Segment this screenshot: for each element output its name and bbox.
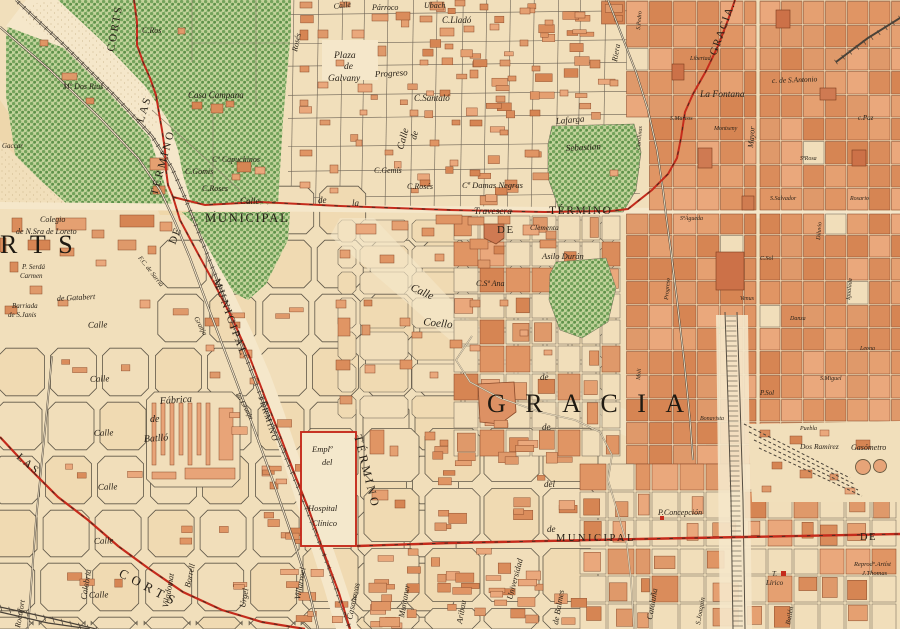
svg-text:Carmen: Carmen — [20, 272, 43, 280]
svg-text:de: de — [547, 524, 556, 534]
svg-text:de: de — [318, 195, 327, 205]
svg-text:C.Sº Ana: C.Sº Ana — [476, 279, 505, 288]
svg-text:Puebla: Puebla — [799, 426, 817, 432]
svg-text:Mº Dos Rius: Mº Dos Rius — [62, 82, 103, 91]
svg-text:S.Miguel: S.Miguel — [820, 376, 842, 382]
svg-text:MUNICIPAL: MUNICIPAL — [556, 533, 636, 544]
svg-text:C.Gomis: C.Gomis — [185, 167, 213, 176]
svg-text:Párroco: Párroco — [371, 3, 398, 12]
svg-text:Gasómetro: Gasómetro — [851, 443, 886, 452]
svg-text:Travesera: Travesera — [474, 207, 512, 217]
svg-text:del: del — [322, 457, 333, 467]
svg-text:J.Thomas: J.Thomas — [862, 570, 888, 577]
svg-text:Calle: Calle — [88, 319, 108, 330]
svg-text:Gaccar: Gaccar — [2, 142, 23, 150]
svg-text:Fábrica: Fábrica — [158, 394, 192, 407]
svg-text:C.Sol: C.Sol — [760, 256, 774, 262]
svg-text:c.Paz: c.Paz — [858, 114, 874, 122]
svg-text:Bonavista: Bonavista — [700, 416, 724, 422]
svg-text:Clementa: Clementa — [530, 223, 559, 232]
svg-text:C.Santaló: C.Santaló — [414, 93, 450, 103]
svg-text:del: del — [544, 479, 555, 489]
svg-text:DE: DE — [860, 532, 877, 543]
svg-text:Barriada: Barriada — [12, 302, 38, 310]
svg-text:Cª Damas Negras: Cª Damas Negras — [462, 180, 524, 190]
svg-text:de: de — [344, 62, 353, 72]
svg-text:Calle: Calle — [89, 589, 109, 600]
svg-text:Sebastian: Sebastian — [566, 141, 602, 153]
svg-text:SªRosa: SªRosa — [800, 156, 817, 162]
svg-text:G R A C I A: G R A C I A — [487, 389, 691, 418]
svg-text:Hospital: Hospital — [307, 503, 338, 513]
svg-text:C.Rosés: C.Rosés — [407, 182, 433, 191]
svg-text:P. Serdá: P. Serdá — [21, 263, 45, 271]
svg-text:de: de — [542, 422, 551, 432]
svg-text:Batlló: Batlló — [143, 432, 168, 445]
svg-text:Dos Ramirez: Dos Ramirez — [799, 442, 839, 451]
svg-text:S.Salvador: S.Salvador — [770, 196, 797, 202]
svg-text:C.Gemís: C.Gemís — [374, 166, 402, 175]
svg-text:MUNICIPAL: MUNICIPAL — [205, 211, 290, 225]
svg-text:Clínico: Clínico — [312, 518, 337, 528]
svg-text:Cº Capuchinos: Cº Capuchinos — [212, 155, 260, 164]
svg-text:SªÁgueda: SªÁgueda — [680, 214, 703, 222]
svg-text:Asilo Durán: Asilo Durán — [541, 251, 584, 261]
svg-text:Reprodº.Artíst: Reprodº.Artíst — [853, 561, 891, 568]
svg-text:T.: T. — [772, 570, 777, 578]
svg-text:Progreso: Progreso — [374, 67, 409, 79]
svg-text:Montseny: Montseny — [713, 126, 738, 132]
svg-text:Ubach: Ubach — [424, 1, 445, 10]
svg-text:Lírico: Lírico — [765, 579, 784, 587]
svg-text:c. de S.Antonio: c. de S.Antonio — [772, 74, 818, 85]
svg-text:Rosario: Rosario — [849, 196, 869, 202]
svg-text:Casa Campana: Casa Campana — [188, 90, 244, 100]
svg-text:Plaza: Plaza — [333, 51, 356, 61]
svg-text:Galvany: Galvany — [328, 74, 361, 84]
svg-text:Libertad: Libertad — [689, 56, 712, 62]
svg-text:C.Lladó: C.Lladó — [442, 15, 472, 25]
svg-text:Danza: Danza — [789, 316, 806, 322]
svg-text:C.Ros: C.Ros — [142, 26, 161, 35]
svg-text:Calle: Calle — [90, 373, 110, 384]
svg-text:de: de — [540, 372, 549, 382]
svg-text:de N.Sra de Loreto: de N.Sra de Loreto — [16, 227, 77, 236]
svg-text:Calle: Calle — [94, 427, 114, 438]
svg-text:de: de — [150, 414, 160, 425]
svg-text:de S.Janis: de S.Janis — [8, 311, 37, 319]
svg-text:La Fontana: La Fontana — [699, 90, 745, 100]
svg-text:Calle: Calle — [98, 481, 118, 492]
svg-text:Calle: Calle — [240, 196, 260, 206]
svg-text:P.Concepción: P.Concepción — [657, 508, 702, 517]
svg-text:Calle: Calle — [94, 535, 114, 546]
svg-text:Emplº: Emplº — [311, 444, 333, 454]
svg-text:la: la — [352, 198, 360, 208]
svg-text:Colegio: Colegio — [40, 215, 65, 224]
svg-text:DE: DE — [497, 224, 515, 236]
svg-text:Moli: Moli — [636, 368, 643, 381]
svg-text:P.Sol: P.Sol — [759, 389, 774, 397]
svg-text:Leona: Leona — [859, 346, 875, 352]
svg-text:TÉRMINO: TÉRMINO — [549, 203, 613, 217]
svg-text:S.Marcos: S.Marcos — [670, 116, 693, 122]
svg-text:Venus: Venus — [740, 296, 755, 302]
svg-text:C.Roses: C.Roses — [202, 184, 228, 193]
